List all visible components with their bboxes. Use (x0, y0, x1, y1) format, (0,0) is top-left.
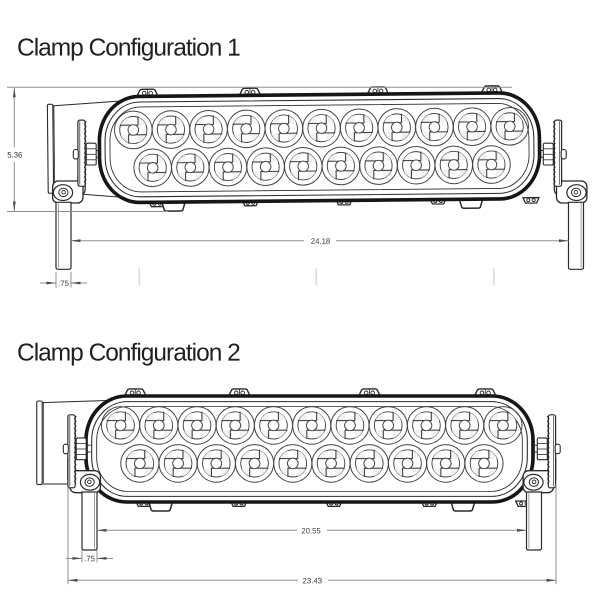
svg-text:23.43: 23.43 (303, 576, 323, 585)
svg-text:24.18: 24.18 (311, 237, 331, 246)
svg-text:.75: .75 (84, 554, 96, 563)
svg-text:20.55: 20.55 (301, 526, 321, 535)
svg-text:Clamp Configuration 2: Clamp Configuration 2 (17, 340, 240, 367)
svg-text:.75: .75 (58, 279, 70, 288)
svg-text:5.36: 5.36 (7, 150, 22, 159)
svg-text:Clamp Configuration 1: Clamp Configuration 1 (17, 35, 240, 62)
